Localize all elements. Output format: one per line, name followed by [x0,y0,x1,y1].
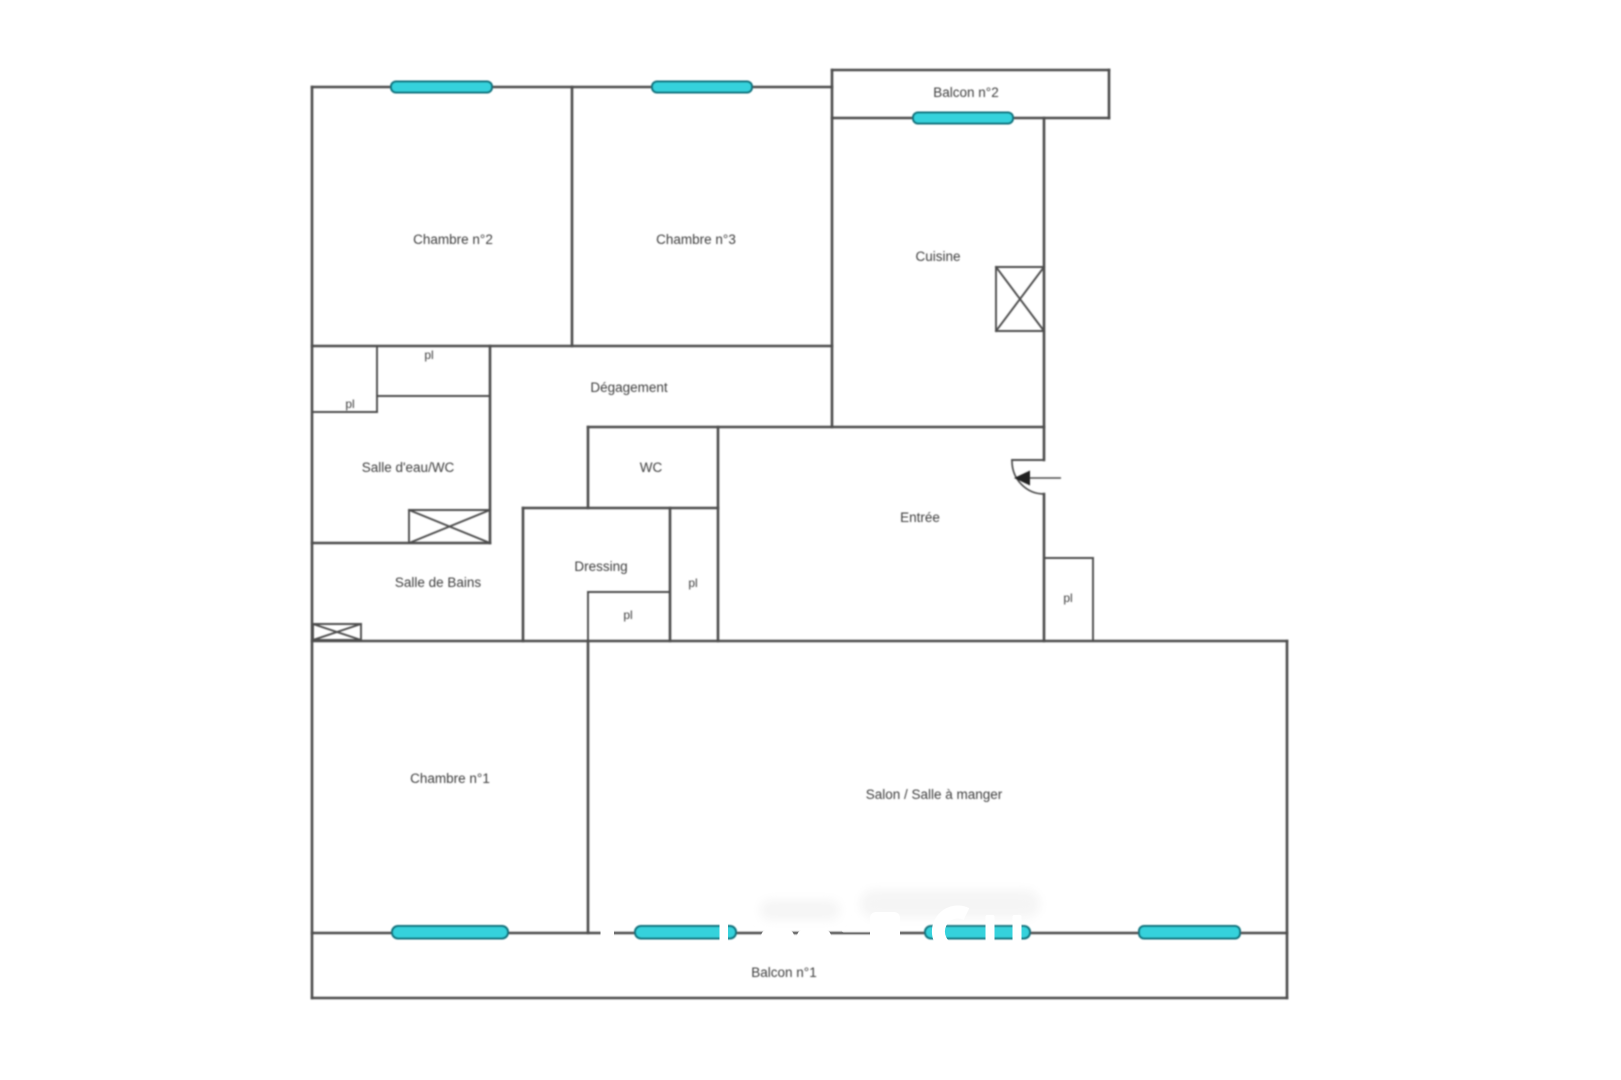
svg-text:pl: pl [688,576,697,590]
svg-text:Entrée: Entrée [900,510,940,525]
svg-text:pl: pl [623,608,632,622]
svg-text:Balcon n°1: Balcon n°1 [751,965,816,980]
svg-text:Salle d'eau/WC: Salle d'eau/WC [362,460,455,475]
svg-text:Chambre n°2: Chambre n°2 [413,232,493,247]
svg-text:WC: WC [640,460,663,475]
svg-text:Balcon n°2: Balcon n°2 [933,85,998,100]
svg-text:Dégagement: Dégagement [590,380,668,395]
svg-text:pl: pl [345,397,354,411]
svg-text:pl: pl [1063,591,1072,605]
svg-text:Dressing: Dressing [574,559,627,574]
svg-text:Chambre n°3: Chambre n°3 [656,232,736,247]
svg-text:Salon / Salle à manger: Salon / Salle à manger [866,787,1003,802]
svg-text:Chambre n°1: Chambre n°1 [410,771,490,786]
svg-text:pl: pl [424,348,433,362]
svg-text:Cuisine: Cuisine [915,249,960,264]
svg-text:Salle de Bains: Salle de Bains [395,575,482,590]
